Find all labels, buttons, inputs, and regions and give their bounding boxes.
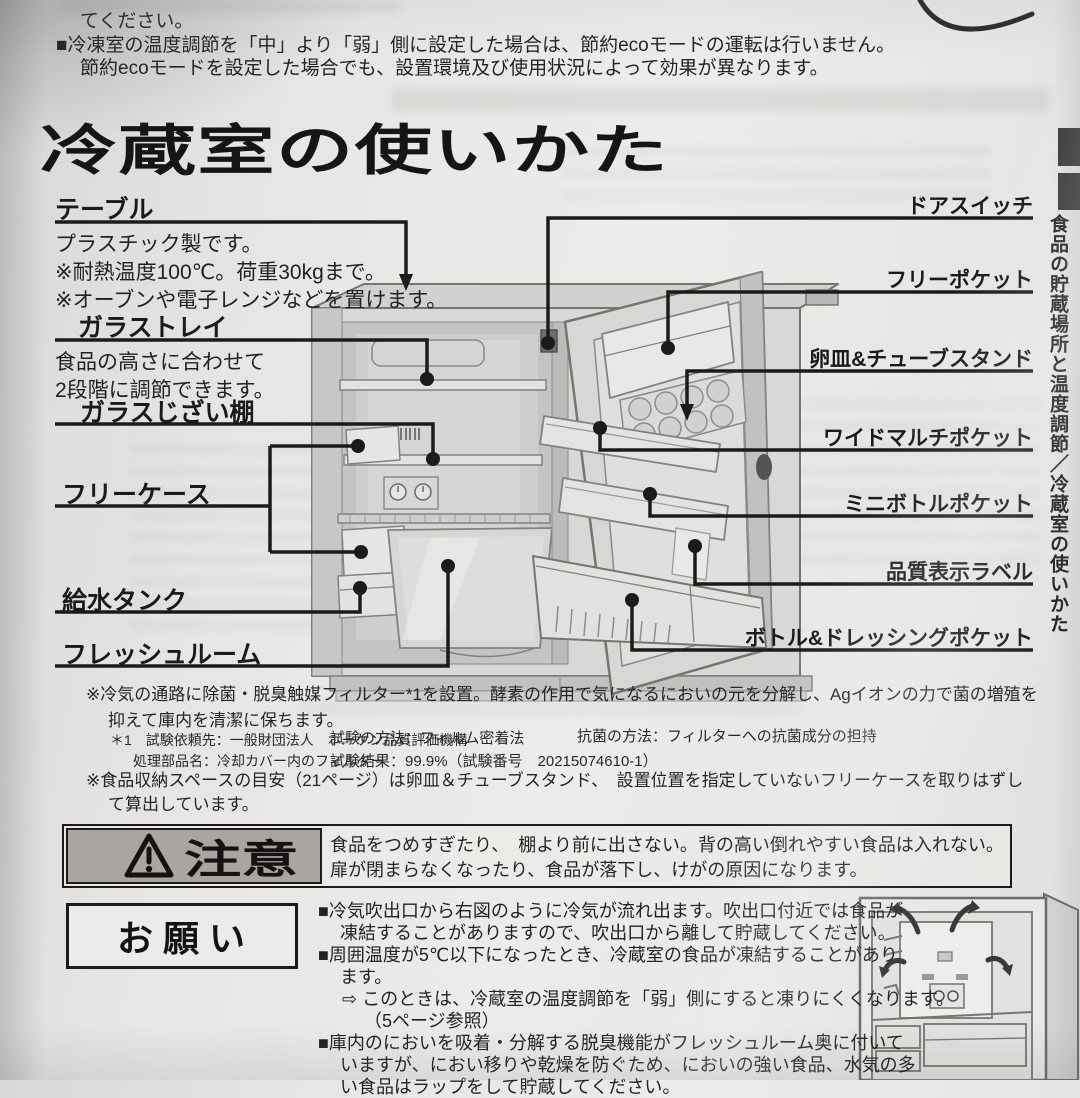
request-line: 凍結することがありますので、吹出口から離して貯蔵してください。: [340, 922, 896, 944]
top-note-line: てください。: [80, 6, 193, 33]
part-label-water-tank: 給水タンク: [62, 581, 187, 617]
part-desc: 食品の高さに合わせて: [55, 346, 265, 376]
part-label-free-pocket: フリーポケット: [886, 264, 1033, 294]
request-title: お願い: [109, 910, 255, 962]
storage-note-line: て算出しています。: [108, 790, 259, 815]
request-line: ■周囲温度が5℃以下になったとき、冷蔵室の食品が凍結することがあり: [318, 944, 898, 966]
caution-text-line: 扉が閉まらなくなったり、食品が落下し、けがの原因になります。: [330, 856, 867, 882]
part-desc: ※耐熱温度100℃。荷重30kgまで。: [55, 256, 386, 286]
part-desc: プラスチック製です。: [55, 228, 262, 258]
part-label-table: テーブル: [55, 190, 154, 226]
request-box: お願い: [66, 903, 298, 969]
filter-note-line: ※冷気の通路に除菌・脱臭触媒フィルター*1を設置。酵素の作用で気になるにおいの元…: [86, 680, 1038, 705]
warning-triangle-icon: [124, 833, 174, 879]
index-tab: [1058, 128, 1080, 166]
part-label-glass-shelf: ガラスじざい棚: [80, 393, 255, 429]
part-label-fresh-room: フレッシュルーム: [62, 635, 261, 671]
request-line: （5ページ参照）: [364, 1010, 500, 1032]
part-label-free-case: フリーケース: [62, 475, 211, 511]
part-label-glass-tray: ガラストレイ: [78, 308, 228, 344]
page-top-curve: [920, 0, 1032, 29]
part-label-egg-tube-stand: 卵皿&チューブスタンド: [809, 343, 1033, 373]
side-tab-text: 食品の貯蔵場所と温度調節／冷蔵室の使いかた: [1044, 214, 1071, 634]
index-tab: [1058, 173, 1080, 210]
top-note-line: 節約ecoモードを設定した場合でも、設置環境及び使用状況によって効果が異なります…: [80, 53, 829, 80]
part-label-door-switch: ドアスイッチ: [907, 190, 1033, 220]
request-line: い食品はラップをして貯蔵してください。: [340, 1076, 680, 1098]
test-info-col2: 試験の方法：フィルム密着法: [330, 727, 524, 748]
part-label-quality-label: 品質表示ラベル: [886, 556, 1033, 586]
caution-label: 注意: [66, 828, 322, 884]
part-label-wide-multi-pocket: ワイドマルチポケット: [823, 422, 1033, 452]
part-label-bottle-dressing-pocket: ボトル&ドレッシングポケット: [745, 622, 1033, 652]
request-line: ます。: [340, 966, 392, 988]
request-line: いますが、におい移りや乾燥を防ぐため、においの強い食品、水気の多: [340, 1054, 916, 1076]
request-line: ⇨ このときは、冷蔵室の温度調節を「弱」側にすると凍りにくくなります。: [342, 988, 954, 1010]
manual-page: てください。 ■冷凍室の温度調節を「中」より「弱」側に設定した場合は、節約eco…: [0, 0, 1080, 1080]
test-info-col3: 抗菌の方法：フィルターへの抗菌成分の担持: [577, 725, 877, 746]
page-title: 冷蔵室の使いかた: [40, 106, 480, 185]
refrigerator-door-illustration: [533, 272, 772, 694]
storage-note-line: ※食品収納スペースの目安（21ページ）は卵皿＆チューブスタンド、 設置位置を指定…: [86, 766, 1023, 791]
request-line: ■冷気吹出口から右図のように冷気が流れ出ます。吹出口付近では食品が: [318, 900, 903, 922]
part-label-mini-bottle-pocket: ミニボトルポケット: [844, 488, 1033, 518]
caution-title: 注意: [184, 827, 298, 885]
door-handle-bump: [756, 454, 772, 480]
request-line: ■庫内のにおいを吸着・分解する脱臭機能がフレッシュルーム奥に付いて: [318, 1032, 904, 1054]
filter-note-line: 抑えて庫内を清潔に保ちます。: [108, 706, 343, 731]
caution-text-line: 食品をつめすぎたり、 棚より前に出さない。背の高い倒れやすい食品は入れない。: [330, 831, 1004, 857]
